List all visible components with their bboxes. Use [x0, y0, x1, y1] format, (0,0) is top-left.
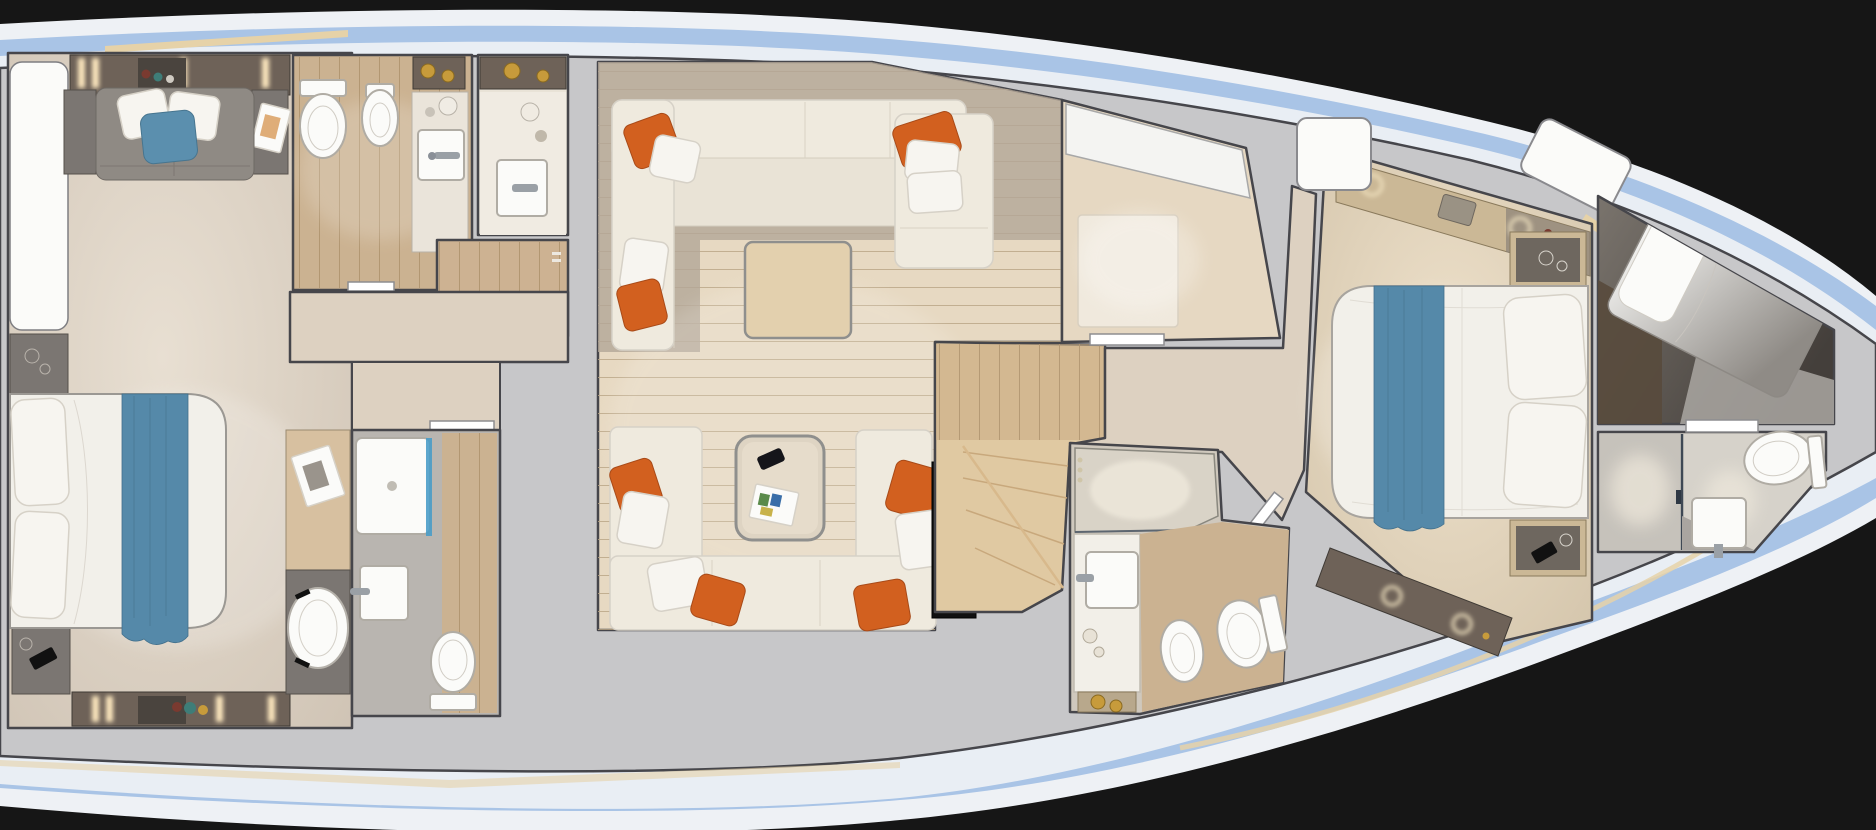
- vessel-bowl: [1110, 700, 1122, 712]
- orange-pillow: [852, 578, 911, 632]
- shower-drain: [387, 481, 397, 491]
- floorplan-svg: [0, 0, 1876, 830]
- white-pillow: [616, 490, 670, 549]
- vessel-counter: [480, 57, 566, 89]
- decor-vase: [198, 705, 208, 715]
- decor-knob: [1483, 633, 1490, 640]
- vessel-bowl: [504, 63, 520, 79]
- vanity-knob: [1094, 647, 1104, 657]
- bed-pillow: [1503, 293, 1588, 400]
- vessel-bowl: [421, 64, 435, 78]
- shower-glass: [426, 438, 432, 536]
- bed-pillow: [10, 398, 69, 507]
- faucet: [1076, 574, 1094, 582]
- side-table-left: [64, 90, 96, 174]
- toilet: [300, 94, 346, 158]
- vessel-shelf: [1078, 692, 1136, 712]
- bed-pillow: [10, 511, 69, 620]
- shower-light: [1090, 460, 1190, 520]
- bidet: [362, 90, 398, 146]
- landing-planks: [936, 344, 1104, 440]
- square-sink: [1692, 498, 1746, 548]
- white-pillow: [907, 170, 964, 214]
- corridor-floor: [290, 292, 568, 362]
- door-leaf: [1686, 420, 1758, 432]
- vanity-dish: [535, 130, 547, 142]
- blue-pillow: [140, 109, 199, 164]
- hull-window-panel: [10, 62, 68, 330]
- faucet: [350, 588, 370, 595]
- faucet: [434, 152, 460, 159]
- wall-light-dots: [1078, 458, 1083, 483]
- nightstand-top: [10, 334, 68, 396]
- bed-pillow: [1503, 401, 1588, 508]
- decor-vase: [172, 702, 182, 712]
- bed-blue-throw: [122, 394, 188, 645]
- yacht-floorplan-image: [0, 0, 1876, 830]
- door-leaf: [1090, 334, 1164, 345]
- vip-cabin: [1306, 148, 1592, 656]
- skylight-hatch: [1297, 118, 1371, 190]
- white-pillow: [648, 134, 702, 185]
- toilet: [431, 632, 475, 692]
- guest-bathroom-aft: [350, 430, 500, 716]
- faucet: [512, 184, 538, 192]
- toilet-tank: [430, 694, 476, 710]
- shower-room: [478, 55, 568, 235]
- vanity-knob: [1083, 629, 1097, 643]
- corridor-floor-south: [352, 362, 500, 430]
- vessel-bowl: [1091, 695, 1105, 709]
- glass-handle: [1676, 490, 1681, 504]
- decor-bowl: [142, 70, 151, 79]
- faucet: [1714, 544, 1723, 558]
- shower-light: [1610, 454, 1670, 526]
- decor-bowl: [166, 75, 174, 83]
- vessel-bowl: [442, 70, 454, 82]
- decor-bowl: [154, 73, 163, 82]
- faucet-base: [428, 152, 436, 160]
- vanity-dish: [439, 97, 457, 115]
- bed-blue-throw: [1374, 286, 1444, 531]
- square-side-table: [745, 242, 851, 338]
- vessel-bowl: [537, 70, 549, 82]
- nightstand-top-inset: [1516, 238, 1580, 282]
- door-leaf: [348, 282, 394, 291]
- room-light-glow: [1080, 210, 1200, 310]
- vanity-dish: [425, 107, 435, 117]
- decor-vase: [184, 702, 196, 714]
